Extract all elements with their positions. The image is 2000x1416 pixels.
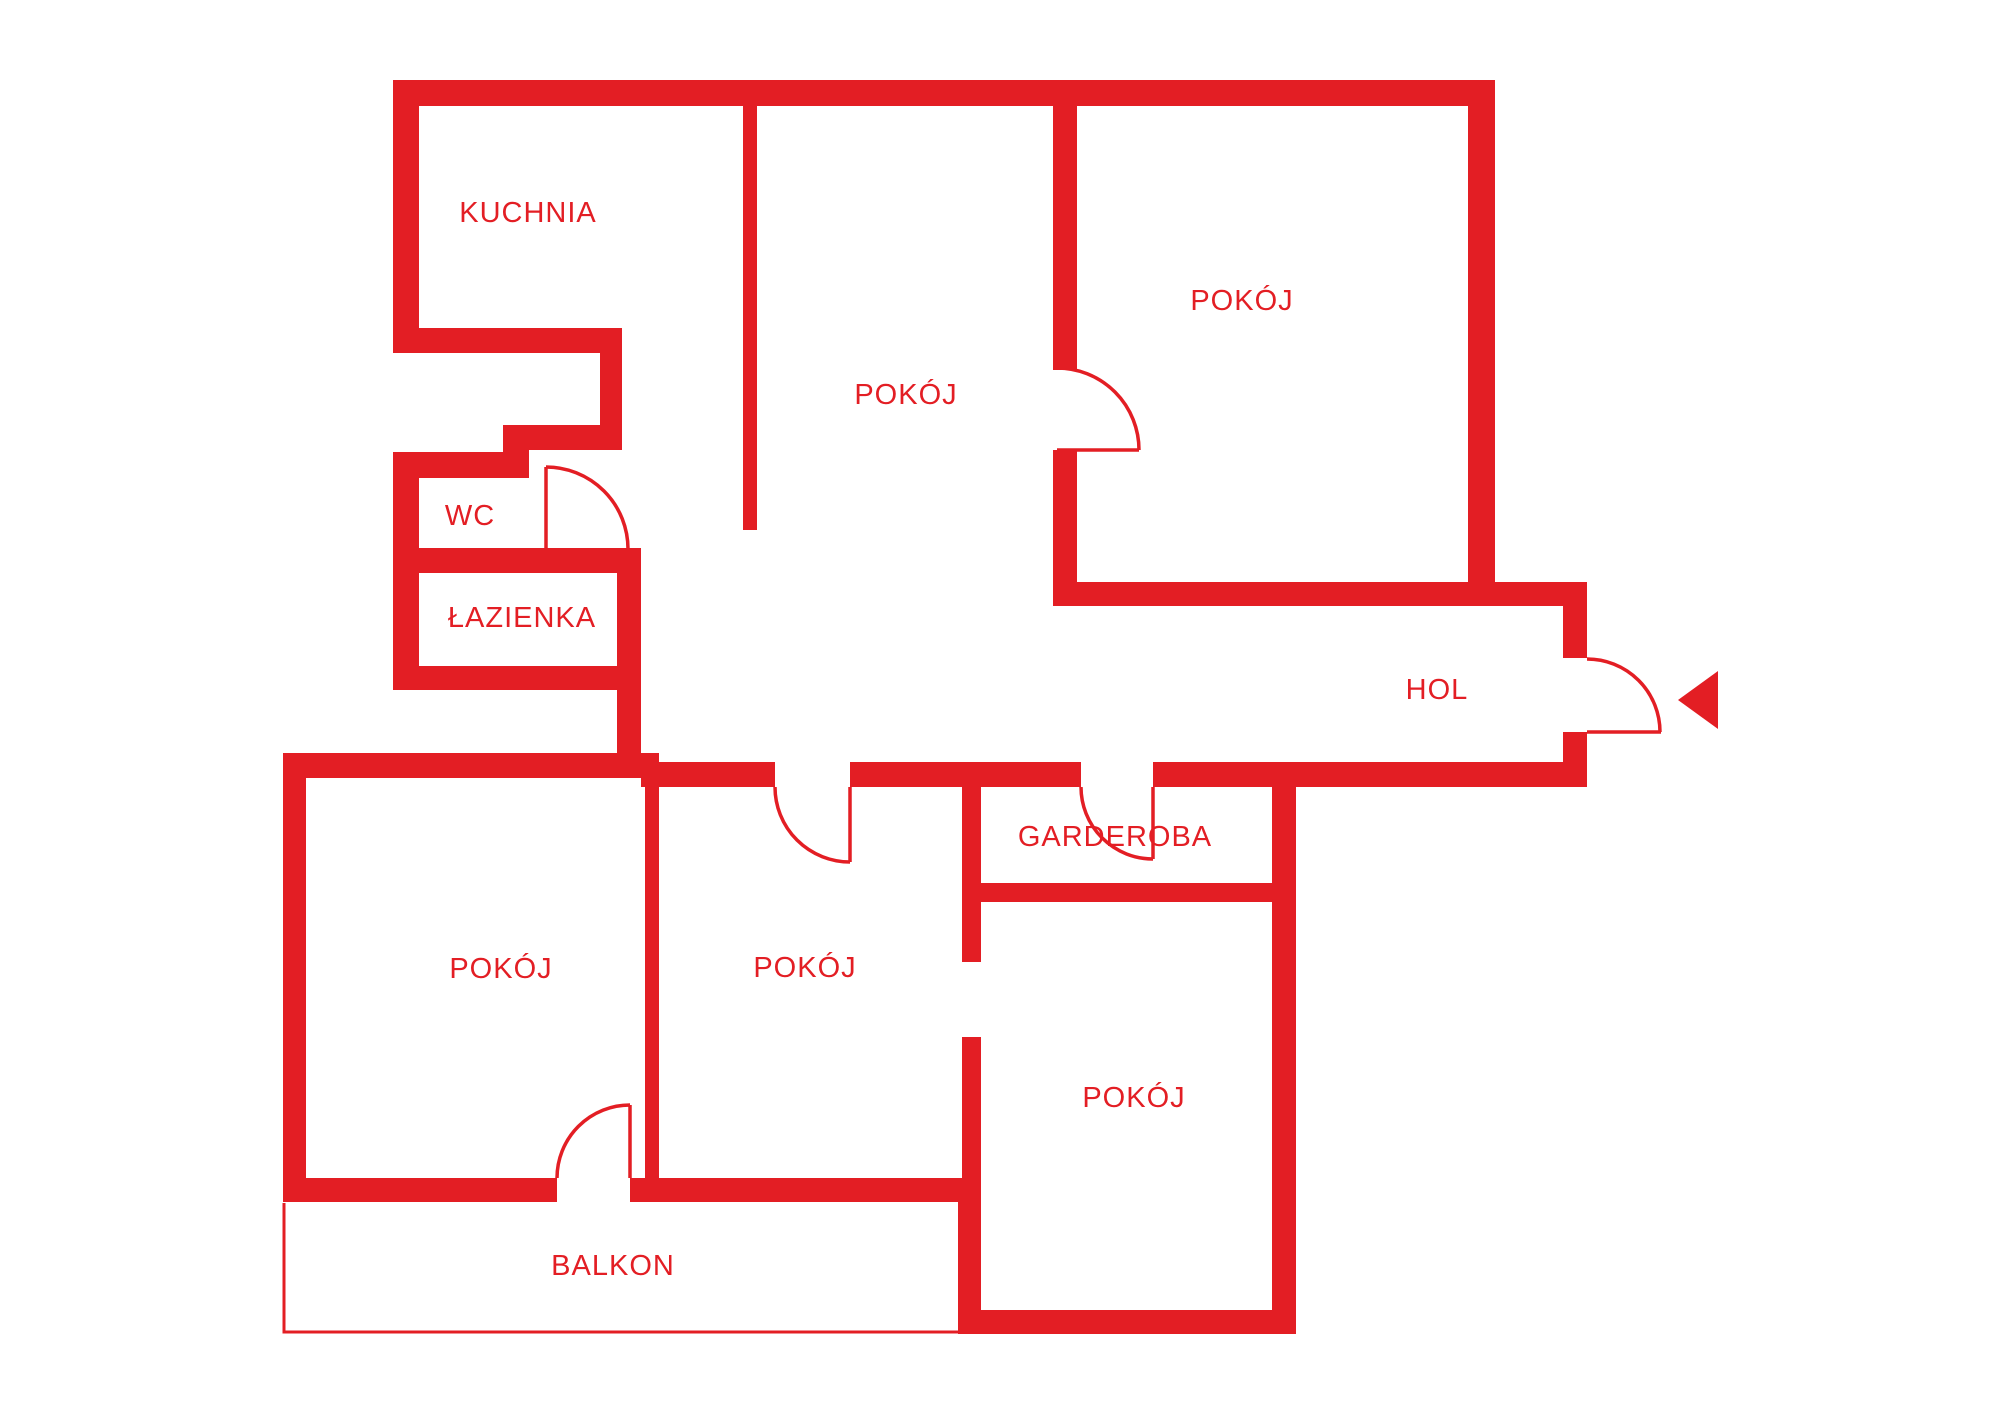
label-room-bottom-middle: POKÓJ: [753, 951, 856, 984]
wall-hall-top-band: [1053, 582, 1587, 606]
wall-hall-bottom-right-segment: [1153, 762, 1587, 787]
balcony-door-arc: [557, 1105, 630, 1178]
label-room-top-middle: POKÓJ: [854, 378, 957, 411]
wall-entrance-below-door: [1563, 732, 1587, 762]
wall-wardrobe-bottom: [962, 883, 1272, 902]
wall-bottom-left-room-top: [283, 753, 659, 778]
wall-top-right-room-right: [1468, 80, 1495, 606]
entrance-door-arc: [1587, 659, 1660, 732]
wall-hall-bottom-left-segment: [641, 762, 775, 787]
room-labels: KUCHNIA POKÓJ POKÓJ WC ŁAZIENKA HOL GARD…: [445, 197, 1468, 1282]
label-room-top-right: POKÓJ: [1190, 284, 1293, 317]
top-right-room-door-arc: [1057, 368, 1139, 450]
label-bathroom: ŁAZIENKA: [448, 602, 596, 634]
label-wardrobe: GARDEROBA: [1018, 821, 1212, 853]
wall-top-rooms-divider-upper: [1053, 106, 1077, 370]
label-kitchen: KUCHNIA: [459, 197, 597, 229]
wall-east: [1272, 762, 1296, 1334]
entrance-arrow-icon: [1678, 671, 1718, 729]
wall-middle-right-divider-lower: [962, 1037, 981, 1202]
wall-bottom-left-middle-divider: [645, 762, 659, 1202]
wall-bathroom-right: [617, 548, 641, 766]
wall-kitchen-left: [393, 80, 419, 353]
wall-bottom-right-room-bottom: [958, 1310, 1296, 1334]
wall-bottom-left-room-left: [283, 753, 306, 1180]
bottom-middle-room-door-arc: [775, 787, 850, 862]
wall-kitchen-bottom: [393, 328, 622, 353]
label-hall: HOL: [1406, 674, 1469, 706]
floor-plan-drawing: KUCHNIA POKÓJ POKÓJ WC ŁAZIENKA HOL GARD…: [0, 0, 2000, 1416]
wall-wc-bottom: [393, 548, 641, 573]
floor-plan-page: KUCHNIA POKÓJ POKÓJ WC ŁAZIENKA HOL GARD…: [0, 0, 2000, 1416]
label-room-bottom-left: POKÓJ: [449, 952, 552, 985]
wall-outer-top: [393, 80, 1495, 106]
wall-middle-right-divider-upper: [962, 762, 981, 962]
wall-bathroom-bottom: [393, 666, 641, 690]
wall-bottom-left-room-bottom: [283, 1178, 557, 1202]
label-wc: WC: [445, 500, 495, 532]
walls: [283, 80, 1587, 1334]
label-balcony: BALKON: [551, 1250, 675, 1282]
wall-entrance-above-door: [1563, 606, 1587, 658]
wall-bottom-middle-room-bottom: [659, 1178, 981, 1202]
label-room-bottom-right: POKÓJ: [1082, 1081, 1185, 1114]
wall-kitchen-room-divider: [743, 105, 757, 530]
wc-door-arc: [546, 467, 628, 549]
